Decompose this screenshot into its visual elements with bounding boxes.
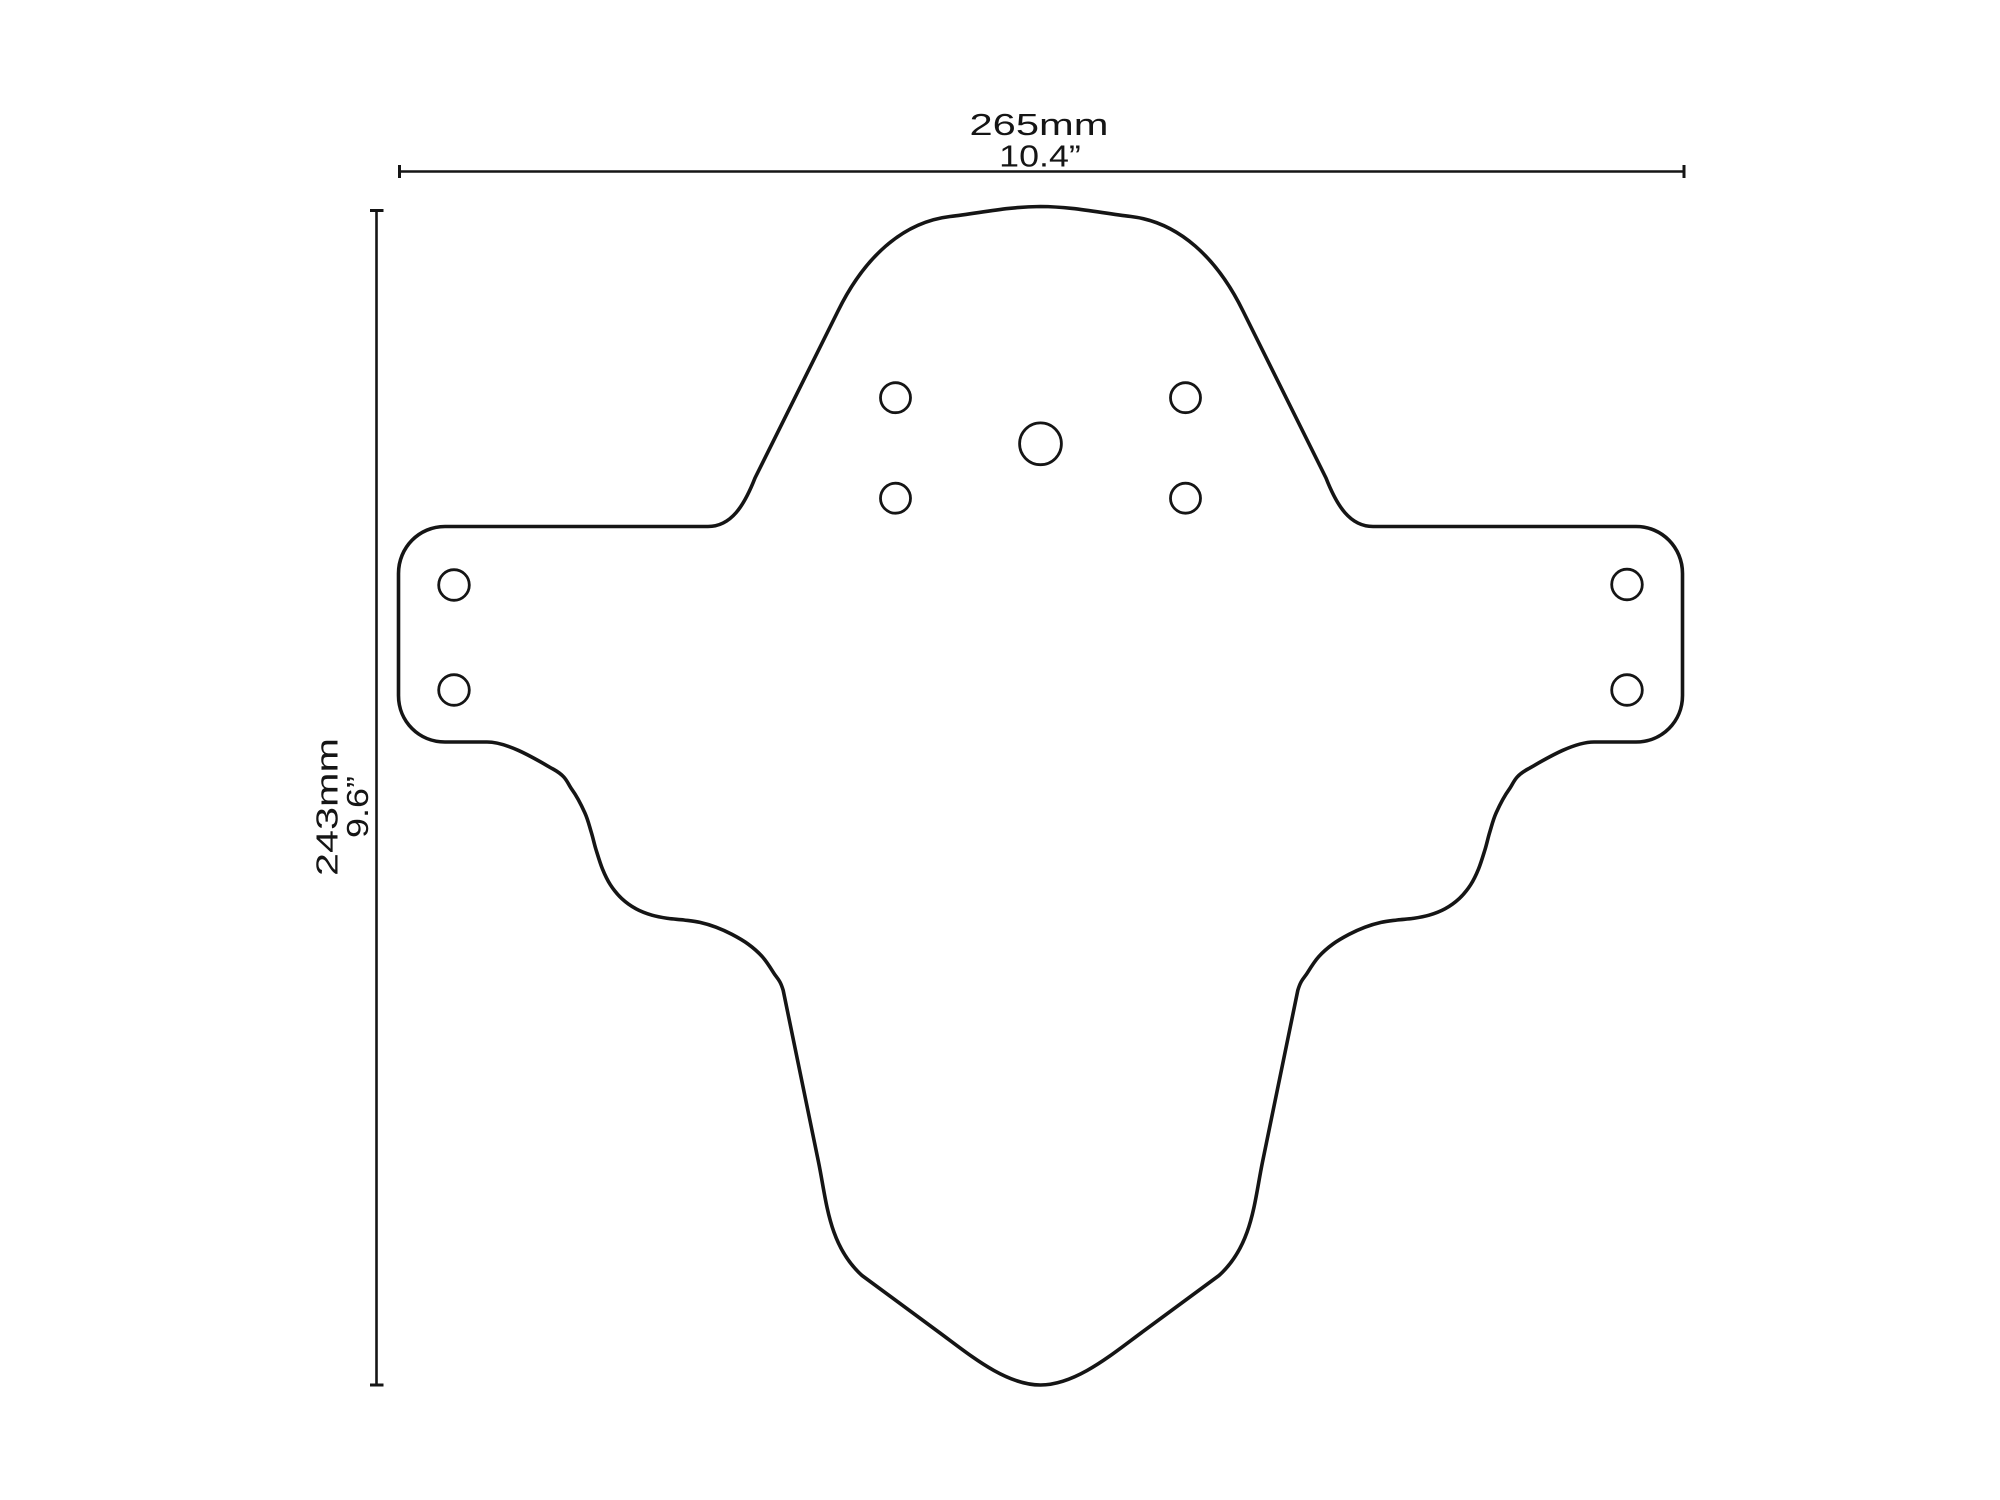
svg-text:265mm: 265mm [970,108,1109,142]
svg-text:243mm: 243mm [311,738,345,876]
svg-text:9.6”: 9.6” [341,776,375,838]
svg-text:10.4”: 10.4” [999,140,1081,174]
